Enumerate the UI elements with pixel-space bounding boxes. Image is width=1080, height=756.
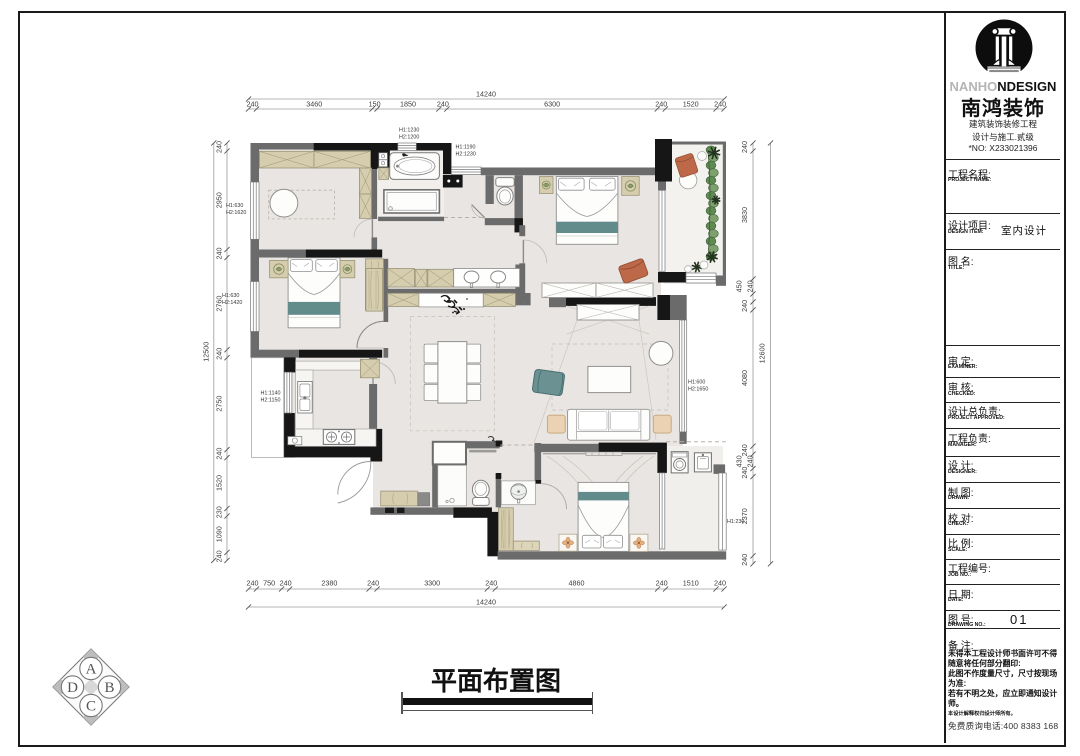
svg-text:240: 240 xyxy=(247,579,259,588)
svg-text:750: 750 xyxy=(263,579,275,588)
svg-text:240: 240 xyxy=(714,579,726,588)
svg-text:240: 240 xyxy=(656,579,668,588)
svg-text:240: 240 xyxy=(655,100,667,109)
svg-text:240: 240 xyxy=(437,100,449,109)
svg-text:240: 240 xyxy=(740,554,749,566)
svg-text:6300: 6300 xyxy=(544,100,560,109)
svg-text:240: 240 xyxy=(215,550,224,562)
svg-text:240: 240 xyxy=(215,248,224,260)
svg-text:3460: 3460 xyxy=(306,100,322,109)
svg-text:C: C xyxy=(86,699,96,715)
svg-text:3300: 3300 xyxy=(424,579,440,588)
svg-text:A: A xyxy=(86,662,97,678)
svg-text:B: B xyxy=(104,680,114,696)
svg-text:H2:1650: H2:1650 xyxy=(688,387,708,393)
svg-text:1090: 1090 xyxy=(215,526,224,542)
svg-text:240: 240 xyxy=(746,280,755,292)
svg-text:2380: 2380 xyxy=(321,579,337,588)
svg-text:H1:630: H1:630 xyxy=(222,293,239,299)
svg-text:230: 230 xyxy=(215,506,224,518)
svg-text:240: 240 xyxy=(740,444,749,456)
svg-text:H1:630: H1:630 xyxy=(226,203,243,209)
svg-text:430: 430 xyxy=(735,455,744,467)
svg-text:H2:1200: H2:1200 xyxy=(399,135,419,141)
svg-text:4080: 4080 xyxy=(740,370,749,386)
svg-text:240: 240 xyxy=(367,579,379,588)
svg-text:240: 240 xyxy=(247,100,259,109)
svg-text:H1:600: H1:600 xyxy=(688,380,705,386)
svg-text:D: D xyxy=(67,680,78,696)
svg-text:H1:1140: H1:1140 xyxy=(261,391,281,397)
svg-text:H2:1420: H2:1420 xyxy=(222,300,242,306)
svg-text:240: 240 xyxy=(280,579,292,588)
svg-text:H2:1150: H2:1150 xyxy=(261,398,281,404)
svg-text:240: 240 xyxy=(714,100,726,109)
svg-text:12600: 12600 xyxy=(758,343,767,363)
svg-text:1520: 1520 xyxy=(215,475,224,491)
svg-text:240: 240 xyxy=(485,579,497,588)
svg-text:240: 240 xyxy=(215,141,224,153)
svg-text:2950: 2950 xyxy=(215,192,224,208)
svg-text:240: 240 xyxy=(215,348,224,360)
svg-text:H2:1620: H2:1620 xyxy=(226,210,246,216)
svg-text:12500: 12500 xyxy=(202,342,211,362)
svg-text:240: 240 xyxy=(740,141,749,153)
svg-text:H1:230: H1:230 xyxy=(727,519,744,525)
svg-text:1520: 1520 xyxy=(683,100,699,109)
svg-text:240: 240 xyxy=(740,300,749,312)
svg-text:1510: 1510 xyxy=(683,579,699,588)
svg-text:H2:1230: H2:1230 xyxy=(456,152,476,158)
svg-text:450: 450 xyxy=(735,280,744,292)
svg-text:H1:1230: H1:1230 xyxy=(399,128,419,134)
svg-text:240: 240 xyxy=(740,467,749,479)
svg-text:14240: 14240 xyxy=(476,598,496,607)
svg-text:14240: 14240 xyxy=(476,90,496,99)
svg-text:4860: 4860 xyxy=(569,579,585,588)
svg-text:240: 240 xyxy=(215,448,224,460)
svg-text:1850: 1850 xyxy=(400,100,416,109)
svg-text:2750: 2750 xyxy=(215,396,224,412)
svg-text:240: 240 xyxy=(746,455,755,467)
svg-text:H1:1190: H1:1190 xyxy=(456,145,476,151)
svg-text:3830: 3830 xyxy=(740,207,749,223)
